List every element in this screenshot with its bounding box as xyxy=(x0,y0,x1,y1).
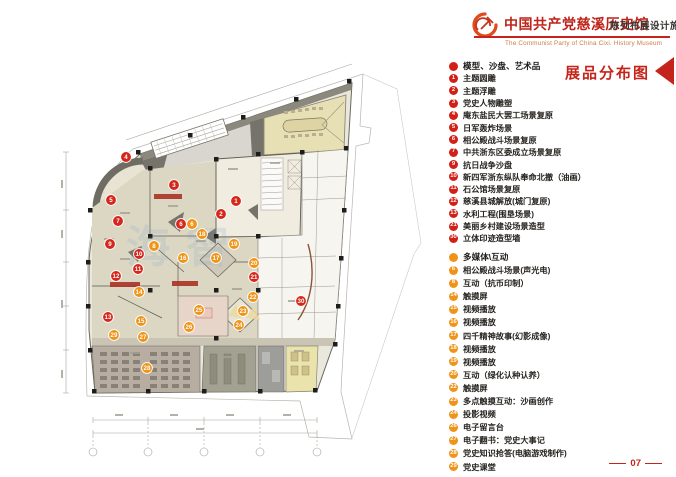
legend-item-label: 立体印迹造型墙 xyxy=(463,232,520,244)
legend-item-label: 多媒体\互动 xyxy=(463,251,508,263)
legend-item-badge: 15 xyxy=(449,305,458,314)
page-title-english: The Communist Party of China Cixi. Histo… xyxy=(505,40,662,47)
legend-list: 模型、沙盘、艺术品1主题圆雕2主题浮雕3党史人物雕塑4庵东盐民大罢工场景复原5日… xyxy=(449,60,674,473)
legend-item-label: 新四军浙东纵队奉命北撤（油画） xyxy=(463,171,586,183)
plan-marker-number: 7 xyxy=(116,218,120,225)
plan-marker-number: 13 xyxy=(105,314,112,321)
plan-marker-number: 8 xyxy=(152,243,156,250)
plan-marker-number: 14 xyxy=(136,289,143,296)
legend-item: 8互动（抗币印制） xyxy=(449,277,674,290)
legend-section-dot xyxy=(449,62,458,71)
legend-item-label: 多点触摸互动：沙画创作 xyxy=(463,395,553,407)
legend-item-badge: 1 xyxy=(449,74,458,83)
plan-marker-number: 4 xyxy=(124,154,128,161)
legend-item-label: 美丽乡村建设场景造型 xyxy=(463,220,545,232)
plan-marker-number: 12 xyxy=(113,273,120,280)
legend-item-label: 日军轰炸场景 xyxy=(463,122,512,134)
legend-item-label: 相公殿战斗场景(声光电) xyxy=(463,264,550,276)
legend-item-label: 互动（绿化认种认养） xyxy=(463,369,545,381)
plan-marker-number: 16 xyxy=(180,255,187,262)
page-number-dash xyxy=(645,463,662,465)
page-number-value: 07 xyxy=(630,458,641,469)
plan-marker-number: 5 xyxy=(109,197,113,204)
plan-marker-number: 25 xyxy=(196,307,203,314)
legend-item-badge: 12 xyxy=(449,197,458,206)
legend-item-badge: 9 xyxy=(449,160,458,169)
legend-item: 7中共浙东区委成立场景复原 xyxy=(449,146,674,158)
south-corridor xyxy=(92,338,335,346)
legend-item: 26电子留言台 xyxy=(449,421,674,434)
plan-marker-number: 10 xyxy=(136,251,143,258)
legend-item-label: 庵东盐民大罢工场景复原 xyxy=(463,109,553,121)
legend-item-label: 视频播放 xyxy=(463,343,496,355)
legend-item-badge: 4 xyxy=(449,111,458,120)
legend-section-header: 多媒体\互动 xyxy=(449,250,674,263)
legend-item-label: 党史人物雕塑 xyxy=(463,97,512,109)
wall-block xyxy=(250,118,264,156)
legend-item-label: 触摸屏 xyxy=(463,382,488,394)
legend-item: 14触摸屏 xyxy=(449,290,674,303)
plan-marker-number: 2 xyxy=(219,211,223,218)
legend-item-label: 党史课堂 xyxy=(463,461,496,473)
legend-item: 17四千精神故事(幻影成像) xyxy=(449,329,674,342)
legend-item-label: 四千精神故事(幻影成像) xyxy=(463,330,550,342)
plan-marker-number: 17 xyxy=(213,255,220,262)
legend-item-badge: 6 xyxy=(449,135,458,144)
legend-item-label: 党史知识抢答(电脑游戏制作) xyxy=(463,447,567,459)
legend-item-badge: 5 xyxy=(449,123,458,132)
plan-marker-number: 29 xyxy=(111,332,118,339)
legend-item: 24投影视频 xyxy=(449,408,674,421)
header-rule xyxy=(474,36,670,38)
legend-item-badge: 3 xyxy=(449,99,458,108)
gray-office xyxy=(258,346,284,392)
legend-item-badge: 16 xyxy=(449,318,458,327)
legend-item-label: 石公馆场景复原 xyxy=(463,183,520,195)
legend-item: 4庵东盐民大罢工场景复原 xyxy=(449,109,674,121)
legend-item-badge: 19 xyxy=(449,357,458,366)
legend-item: 6相公殿战斗场景(声光电) xyxy=(449,264,674,277)
legend-item-badge: 2 xyxy=(449,86,458,95)
legend-item: 19视频播放 xyxy=(449,355,674,368)
plan-marker-number: 30 xyxy=(298,298,305,305)
legend-item: 11石公馆场景复原 xyxy=(449,183,674,195)
legend-item-label: 视频播放 xyxy=(463,356,496,368)
service-core xyxy=(258,149,348,340)
page-number-dash xyxy=(609,463,626,465)
legend-item: 10新四军浙东纵队奉命北撤（油画） xyxy=(449,171,674,183)
legend-item-label: 电子留言台 xyxy=(463,421,504,433)
legend-item-badge: 22 xyxy=(449,383,458,392)
legend-item: 12慈溪县城解放(城门复原) xyxy=(449,195,674,207)
legend-item: 3党史人物雕塑 xyxy=(449,97,674,109)
legend-item-label: 互动（抗币印制） xyxy=(463,277,529,289)
legend-item-badge: 26 xyxy=(449,423,458,432)
legend-section-header: 模型、沙盘、艺术品 xyxy=(449,60,674,72)
plan-marker-number: 24 xyxy=(236,322,243,329)
legend-item: 20互动（绿化认种认养） xyxy=(449,368,674,381)
legend-item-badge: 8 xyxy=(449,279,458,288)
legend-item-label: 模型、沙盘、艺术品 xyxy=(463,60,540,72)
legend-item-label: 投影视频 xyxy=(463,408,496,420)
legend-item-badge: 24 xyxy=(449,410,458,419)
legend-item-badge: 6 xyxy=(449,266,458,275)
legend-item-label: 电子翻书：党史大事记 xyxy=(463,434,545,446)
legend-item-label: 触摸屏 xyxy=(463,290,488,302)
yellow-office xyxy=(286,346,318,392)
legend-item-label: 中共浙东区委成立场景复原 xyxy=(463,146,561,158)
legend-item-label: 慈溪县城解放(城门复原) xyxy=(463,195,550,207)
plan-marker-number: 28 xyxy=(144,365,151,372)
legend-item-badge: 7 xyxy=(449,148,458,157)
legend-item-label: 视频播放 xyxy=(463,316,496,328)
legend-item: 13水利工程(围垦场景) xyxy=(449,208,674,220)
floor-plan: 海智 1234567910111213213068141516171819202… xyxy=(0,0,445,477)
legend-item: 23多点触摸互动：沙画创作 xyxy=(449,394,674,407)
legend-item-badge: 27 xyxy=(449,436,458,445)
legend-item: 15视频播放 xyxy=(449,303,674,316)
legend-item-badge: 13 xyxy=(449,209,458,218)
legend-item-badge: 21 xyxy=(449,222,458,231)
legend-item-label: 视频播放 xyxy=(463,303,496,315)
legend-item-label: 主题圆雕 xyxy=(463,72,496,84)
legend-item: 30立体印迹造型墙 xyxy=(449,232,674,244)
plan-marker-number: 18 xyxy=(199,231,206,238)
legend-item-badge: 14 xyxy=(449,292,458,301)
plan-marker-number: 6 xyxy=(190,221,194,228)
legend-item-badge: 18 xyxy=(449,344,458,353)
legend-item-badge: 30 xyxy=(449,234,458,243)
legend-item-badge: 17 xyxy=(449,331,458,340)
plan-marker-number: 1 xyxy=(234,198,238,205)
legend-item: 16视频播放 xyxy=(449,316,674,329)
page-subtitle: 陈列布展设计施工方案 xyxy=(610,18,676,32)
plan-marker-number: 11 xyxy=(135,266,142,273)
plan-marker-number: 19 xyxy=(231,241,238,248)
legend-item-badge: 28 xyxy=(449,449,458,458)
legend-item: 22触摸屏 xyxy=(449,381,674,394)
legend-item: 6相公殿战斗场景复原 xyxy=(449,134,674,146)
legend-item-badge: 20 xyxy=(449,370,458,379)
plan-marker-number: 26 xyxy=(186,324,193,331)
legend-item: 5日军轰炸场景 xyxy=(449,121,674,133)
plan-marker-number: 6 xyxy=(179,221,183,228)
legend-item-label: 相公殿战斗场景复原 xyxy=(463,134,537,146)
watermark: 海智 xyxy=(126,223,246,272)
legend-item: 2主题浮雕 xyxy=(449,85,674,97)
page-header: 中国共产党慈溪历史馆 陈列布展设计施工方案 The Communist Part… xyxy=(470,8,670,52)
legend-item: 27电子翻书：党史大事记 xyxy=(449,434,674,447)
plan-marker-number: 21 xyxy=(251,274,258,281)
legend-item-badge: 29 xyxy=(449,462,458,471)
plan-marker-number: 22 xyxy=(250,294,257,301)
green-room xyxy=(202,346,256,392)
legend-item-label: 水利工程(围垦场景) xyxy=(463,208,534,220)
legend-item-badge: 11 xyxy=(449,185,458,194)
plan-marker-number: 27 xyxy=(140,334,147,341)
parcel-line xyxy=(352,74,421,438)
legend-item-badge: 10 xyxy=(449,172,458,181)
plan-marker-number: 3 xyxy=(172,182,176,189)
legend-item: 9抗日战争沙盘 xyxy=(449,158,674,170)
legend-item: 21美丽乡村建设场景造型 xyxy=(449,220,674,232)
page-number: 07 xyxy=(609,458,662,469)
plan-marker-number: 20 xyxy=(251,260,258,267)
plan-marker-number: 9 xyxy=(108,241,112,248)
legend-item-badge: 23 xyxy=(449,397,458,406)
legend-item: 18视频播放 xyxy=(449,342,674,355)
legend-item-label: 抗日战争沙盘 xyxy=(463,159,512,171)
legend-section-dot xyxy=(449,253,458,262)
plan-marker-number: 15 xyxy=(138,318,145,325)
plan-marker-number: 23 xyxy=(240,308,247,315)
legend-item-label: 主题浮雕 xyxy=(463,85,496,97)
legend-item: 1主题圆雕 xyxy=(449,72,674,84)
